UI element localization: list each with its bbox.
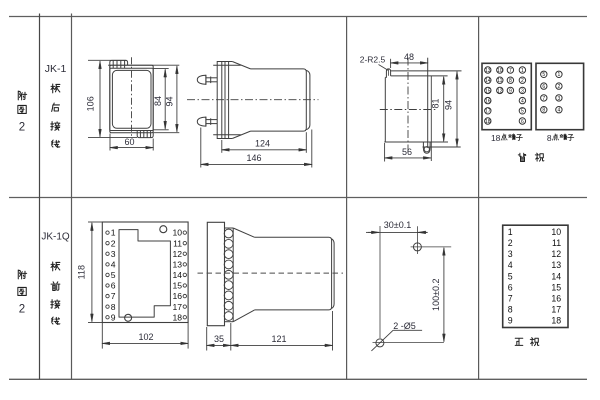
svg-text:15: 15 — [485, 88, 491, 94]
svg-text:11: 11 — [552, 238, 561, 248]
svg-text:5: 5 — [542, 72, 545, 78]
svg-text:5: 5 — [521, 109, 524, 115]
svg-text:13: 13 — [551, 260, 561, 270]
svg-text:13: 13 — [172, 259, 182, 269]
svg-text:3: 3 — [111, 249, 116, 259]
svg-text:10: 10 — [551, 227, 561, 237]
svg-text:6: 6 — [542, 84, 545, 90]
svg-text:9: 9 — [509, 88, 512, 94]
svg-text:10: 10 — [497, 68, 503, 74]
svg-text:2: 2 — [19, 304, 25, 316]
svg-text:2 -Ø5: 2 -Ø5 — [393, 321, 416, 331]
svg-text:12: 12 — [551, 249, 561, 259]
svg-text:18: 18 — [485, 119, 491, 125]
svg-text:4: 4 — [508, 260, 513, 270]
svg-text:JK-1Q: JK-1Q — [41, 232, 70, 243]
svg-text:2-R2.5: 2-R2.5 — [360, 55, 386, 65]
svg-text:2: 2 — [521, 78, 524, 84]
svg-text:100±0.2: 100±0.2 — [431, 278, 441, 310]
svg-text:84: 84 — [153, 96, 163, 106]
svg-text:106: 106 — [86, 96, 96, 111]
svg-text:60: 60 — [124, 137, 134, 147]
svg-text:1: 1 — [558, 72, 561, 78]
svg-text:15: 15 — [551, 282, 561, 292]
svg-text:14: 14 — [172, 270, 182, 280]
svg-text:4: 4 — [111, 259, 116, 269]
svg-text:3: 3 — [508, 249, 513, 259]
svg-text:18: 18 — [172, 312, 182, 322]
svg-text:6: 6 — [521, 119, 524, 125]
svg-text:3: 3 — [558, 96, 561, 102]
svg-text:11: 11 — [173, 238, 182, 248]
svg-text:2: 2 — [558, 84, 561, 90]
svg-text:12: 12 — [497, 88, 503, 94]
svg-text:9: 9 — [508, 316, 513, 326]
svg-text:18: 18 — [491, 133, 501, 143]
svg-text:9: 9 — [111, 312, 116, 322]
svg-text:124: 124 — [255, 139, 270, 149]
svg-text:94: 94 — [165, 96, 175, 106]
svg-text:8: 8 — [509, 78, 512, 84]
svg-text:7: 7 — [542, 96, 545, 102]
svg-text:118: 118 — [77, 265, 87, 279]
svg-text:7: 7 — [111, 291, 116, 301]
svg-text:17: 17 — [551, 304, 561, 314]
svg-text:94: 94 — [444, 100, 454, 110]
svg-text:6: 6 — [111, 281, 116, 291]
svg-text:4: 4 — [558, 108, 561, 114]
svg-text:12: 12 — [172, 249, 182, 259]
svg-text:5: 5 — [508, 271, 513, 281]
svg-text:2: 2 — [19, 122, 25, 134]
svg-text:17: 17 — [485, 109, 491, 115]
svg-text:8: 8 — [547, 133, 552, 143]
svg-text:13: 13 — [485, 68, 491, 74]
svg-text:14: 14 — [485, 78, 491, 84]
svg-text:16: 16 — [172, 291, 182, 301]
svg-text:35: 35 — [214, 334, 224, 344]
svg-text:JK-1: JK-1 — [45, 63, 67, 75]
svg-text:146: 146 — [246, 153, 261, 163]
svg-text:2: 2 — [508, 238, 513, 248]
svg-text:16: 16 — [485, 99, 491, 105]
svg-text:30±0.1: 30±0.1 — [384, 220, 411, 230]
svg-text:81: 81 — [431, 98, 441, 108]
svg-text:102: 102 — [138, 332, 153, 342]
svg-text:6: 6 — [508, 282, 513, 292]
svg-text:8: 8 — [111, 302, 116, 312]
svg-text:17: 17 — [172, 302, 182, 312]
svg-text:121: 121 — [271, 334, 286, 344]
svg-text:16: 16 — [551, 293, 561, 303]
svg-text:7: 7 — [509, 68, 512, 74]
svg-text:8: 8 — [508, 304, 513, 314]
svg-text:5: 5 — [111, 270, 116, 280]
svg-text:48: 48 — [404, 52, 414, 62]
svg-text:8: 8 — [542, 108, 545, 114]
svg-text:18: 18 — [551, 316, 561, 326]
svg-text:56: 56 — [402, 147, 412, 157]
svg-text:1: 1 — [521, 68, 524, 74]
svg-text:2: 2 — [111, 238, 116, 248]
svg-text:4: 4 — [521, 99, 524, 105]
svg-text:1: 1 — [111, 228, 116, 238]
svg-text:1: 1 — [508, 227, 513, 237]
svg-text:14: 14 — [551, 271, 561, 281]
svg-text:10: 10 — [172, 228, 182, 238]
svg-text:15: 15 — [172, 281, 182, 291]
svg-text:7: 7 — [508, 293, 513, 303]
svg-text:3: 3 — [521, 88, 524, 94]
svg-text:11: 11 — [497, 78, 502, 84]
